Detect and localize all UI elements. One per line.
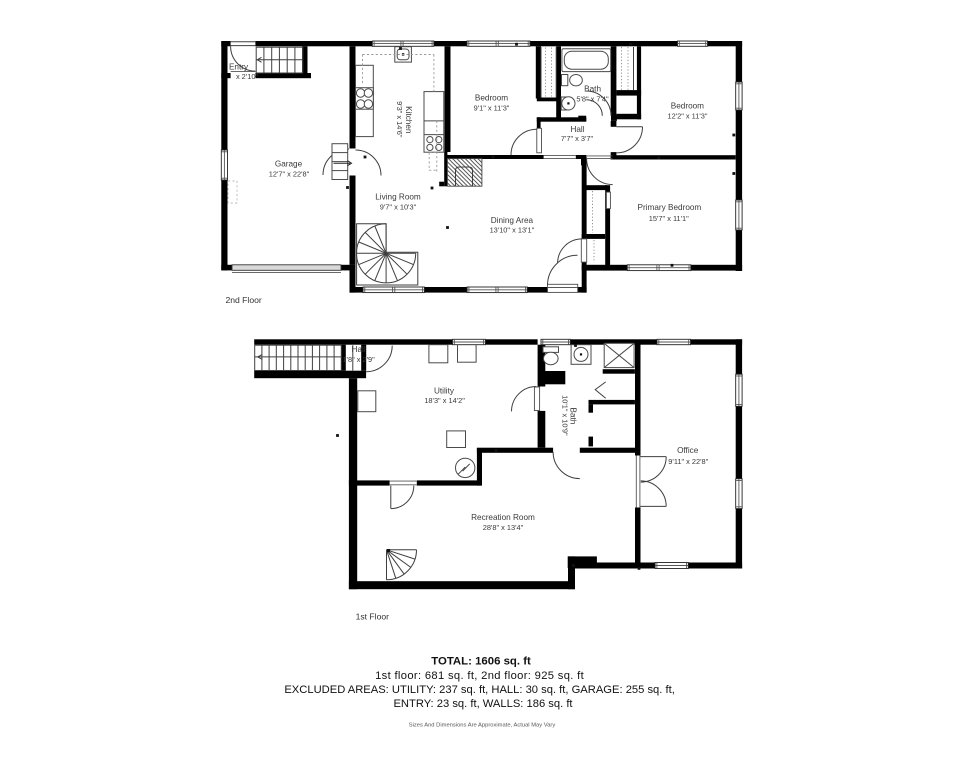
svg-text:2nd Floor: 2nd Floor — [225, 295, 261, 305]
svg-text:EXCLUDED AREAS: UTILITY: 237 s: EXCLUDED AREAS: UTILITY: 237 sq. ft, HAL… — [284, 684, 674, 696]
svg-text:28'8" x 13'4": 28'8" x 13'4" — [483, 523, 524, 532]
svg-text:Utility: Utility — [434, 387, 455, 396]
svg-text:7'7" x 3'7": 7'7" x 3'7" — [561, 134, 594, 143]
svg-text:1st Floor: 1st Floor — [356, 612, 390, 622]
svg-text:TOTAL: 1606 sq. ft: TOTAL: 1606 sq. ft — [431, 656, 531, 668]
svg-text:9'11" x 22'8": 9'11" x 22'8" — [668, 457, 708, 466]
svg-text:1'8" x 2'9": 1'8" x 2'9" — [342, 355, 375, 364]
svg-text:Entry: Entry — [229, 63, 249, 72]
svg-text:Living Room: Living Room — [375, 193, 421, 202]
svg-text:12'2" x 11'3": 12'2" x 11'3" — [668, 112, 708, 121]
svg-text:9'7" x 10'3": 9'7" x 10'3" — [380, 203, 417, 212]
svg-text:Hall: Hall — [352, 345, 366, 354]
svg-text:Kitchen: Kitchen — [404, 106, 413, 134]
svg-text:12'7" x 22'8": 12'7" x 22'8" — [269, 169, 310, 178]
svg-text:Garage: Garage — [275, 159, 303, 168]
svg-text:Bedroom: Bedroom — [475, 94, 508, 103]
svg-text:Primary Bedroom: Primary Bedroom — [638, 203, 702, 212]
svg-text:9'3" x 14'6": 9'3" x 14'6" — [395, 101, 404, 138]
svg-text:1st floor: 681 sq. ft, 2nd flo: 1st floor: 681 sq. ft, 2nd floor: 925 sq… — [375, 670, 585, 682]
svg-text:5'8" x 7'4": 5'8" x 7'4" — [576, 95, 609, 104]
svg-text:Sizes And Dimensions Are Appro: Sizes And Dimensions Are Approximate, Ac… — [409, 722, 556, 728]
svg-text:13'10" x 13'1": 13'10" x 13'1" — [490, 226, 535, 235]
svg-text:Bath: Bath — [584, 85, 601, 94]
svg-text:18'3" x 14'2": 18'3" x 14'2" — [424, 396, 465, 405]
svg-text:Recreation Room: Recreation Room — [471, 513, 535, 522]
svg-text:Bedroom: Bedroom — [671, 102, 704, 111]
svg-text:Dining Area: Dining Area — [491, 216, 534, 225]
svg-text:ENTRY: 23 sq. ft, WALLS: 186 s: ENTRY: 23 sq. ft, WALLS: 186 sq. ft — [393, 698, 573, 710]
svg-text:Office: Office — [677, 446, 699, 455]
svg-text:15'7" x 11'1": 15'7" x 11'1" — [649, 214, 689, 223]
svg-text:x 2'10": x 2'10" — [236, 72, 258, 81]
svg-text:9'1" x 11'3": 9'1" x 11'3" — [474, 103, 510, 112]
svg-text:10'1" x 10'9": 10'1" x 10'9" — [560, 395, 569, 436]
svg-text:Hall: Hall — [570, 125, 584, 134]
